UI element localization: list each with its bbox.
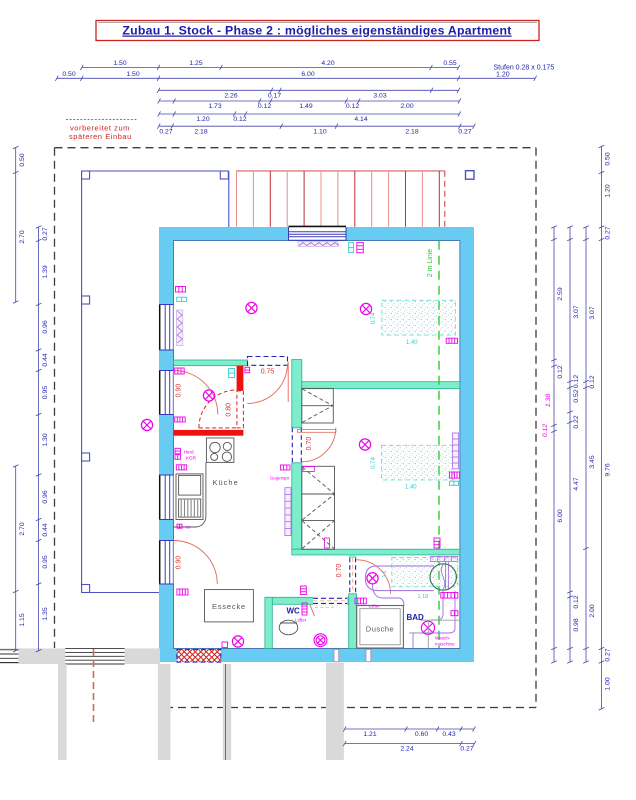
svg-text:4.47: 4.47 [573, 477, 580, 490]
svg-text:Küche: Küche [213, 478, 239, 487]
svg-text:0.80: 0.80 [226, 403, 233, 417]
svg-text:0.27: 0.27 [159, 128, 172, 135]
svg-text:2 m Linie: 2 m Linie [427, 249, 434, 278]
svg-text:0.27: 0.27 [605, 648, 612, 661]
svg-text:0.27: 0.27 [458, 128, 471, 135]
svg-text:Wasch-: Wasch- [435, 636, 451, 641]
svg-text:3.45: 3.45 [589, 455, 596, 468]
svg-text:0.22: 0.22 [573, 415, 580, 428]
svg-text:Dusche: Dusche [366, 625, 394, 634]
svg-text:0.95: 0.95 [42, 386, 49, 399]
svg-text:0.50: 0.50 [605, 152, 612, 165]
svg-text:0.27: 0.27 [42, 227, 49, 240]
svg-text:0.90: 0.90 [175, 384, 182, 398]
svg-text:1.50: 1.50 [113, 60, 126, 67]
svg-text:0.74: 0.74 [371, 457, 377, 469]
svg-text:1.10: 1.10 [313, 128, 326, 135]
svg-text:6.00: 6.00 [301, 71, 314, 78]
svg-text:KGR: KGR [186, 456, 197, 461]
svg-text:0.52: 0.52 [573, 389, 580, 402]
svg-text:2.18: 2.18 [194, 128, 207, 135]
svg-text:1.39: 1.39 [42, 265, 49, 278]
svg-text:0.60: 0.60 [415, 731, 428, 738]
svg-text:1.21: 1.21 [363, 731, 376, 738]
svg-text:2.59: 2.59 [557, 287, 564, 300]
svg-text:Zubau 1. Stock - Phase 2 : mög: Zubau 1. Stock - Phase 2 : mögliches eig… [122, 24, 511, 38]
svg-text:2.70: 2.70 [19, 230, 26, 243]
svg-text:0.50: 0.50 [19, 153, 26, 166]
svg-text:0.95: 0.95 [42, 555, 49, 568]
svg-text:3.07: 3.07 [589, 306, 596, 319]
svg-text:0.12: 0.12 [233, 116, 246, 123]
svg-text:1.20: 1.20 [196, 116, 209, 123]
svg-text:1.40: 1.40 [405, 485, 417, 491]
svg-text:0.98: 0.98 [573, 618, 580, 631]
svg-text:1.18: 1.18 [418, 594, 429, 600]
svg-text:1.20: 1.20 [496, 72, 510, 79]
svg-text:Lüfter: Lüfter [369, 604, 381, 609]
svg-text:0.12: 0.12 [557, 365, 564, 378]
svg-text:1.20: 1.20 [605, 184, 612, 197]
svg-text:6.00: 6.00 [557, 509, 564, 522]
svg-text:0.27: 0.27 [605, 226, 612, 239]
svg-text:1.25: 1.25 [189, 60, 202, 67]
svg-text:Herd: Herd [184, 450, 194, 455]
svg-text:4.20: 4.20 [321, 60, 334, 67]
svg-text:os: os [186, 525, 192, 530]
svg-text:Essecke: Essecke [212, 602, 246, 611]
svg-text:0.55: 0.55 [443, 60, 456, 67]
svg-text:0.12: 0.12 [542, 424, 549, 437]
svg-text:Gegenspr.: Gegenspr. [270, 476, 290, 481]
svg-text:0.50: 0.50 [62, 71, 75, 78]
svg-text:maschine: maschine [435, 642, 455, 647]
svg-text:0.96: 0.96 [42, 490, 49, 503]
svg-text:1.40: 1.40 [406, 340, 418, 346]
svg-text:0.90: 0.90 [175, 556, 182, 570]
svg-text:0.12: 0.12 [258, 103, 271, 110]
svg-text:1.00: 1.00 [605, 677, 612, 690]
svg-text:4.14: 4.14 [354, 116, 367, 123]
svg-text:1.38: 1.38 [545, 394, 552, 407]
svg-text:Stufen 0.28 x 0.175: Stufen 0.28 x 0.175 [494, 65, 555, 72]
svg-text:0.96: 0.96 [42, 320, 49, 333]
svg-text:0.43: 0.43 [442, 731, 455, 738]
svg-text:2.00: 2.00 [589, 604, 596, 617]
svg-text:Lüfter: Lüfter [295, 618, 307, 623]
svg-text:0.12: 0.12 [573, 375, 580, 388]
svg-text:2.24: 2.24 [400, 746, 413, 753]
svg-text:1.6: 1.6 [382, 570, 388, 577]
svg-text:1.49: 1.49 [299, 103, 312, 110]
svg-text:1.15: 1.15 [19, 613, 26, 626]
svg-text:0.70: 0.70 [336, 564, 343, 578]
svg-text:0.17: 0.17 [268, 93, 281, 100]
svg-text:2.70: 2.70 [19, 522, 26, 535]
svg-text:0.44: 0.44 [42, 353, 49, 366]
svg-text:3.03: 3.03 [373, 93, 386, 100]
svg-text:0.74: 0.74 [371, 312, 377, 324]
svg-text:0.12: 0.12 [573, 595, 580, 608]
svg-text:0.12: 0.12 [346, 103, 359, 110]
svg-text:2.26: 2.26 [224, 93, 237, 100]
svg-text:WC: WC [287, 607, 301, 616]
svg-text:1.35: 1.35 [42, 607, 49, 620]
svg-text:BAD: BAD [407, 613, 425, 622]
svg-text:1.30: 1.30 [42, 433, 49, 446]
svg-text:2.18: 2.18 [405, 128, 418, 135]
svg-text:1.73: 1.73 [208, 103, 221, 110]
svg-text:2.00: 2.00 [400, 103, 413, 110]
svg-text:9.76: 9.76 [605, 463, 612, 476]
svg-text:späteren Einbau: späteren Einbau [69, 132, 132, 141]
svg-text:0.27: 0.27 [460, 746, 473, 753]
svg-text:0.12: 0.12 [589, 375, 596, 388]
svg-text:1.50: 1.50 [126, 71, 139, 78]
svg-text:3.07: 3.07 [573, 305, 580, 318]
svg-text:0.70: 0.70 [306, 437, 313, 451]
svg-text:0.44: 0.44 [42, 523, 49, 536]
svg-text:0.75: 0.75 [261, 369, 275, 376]
